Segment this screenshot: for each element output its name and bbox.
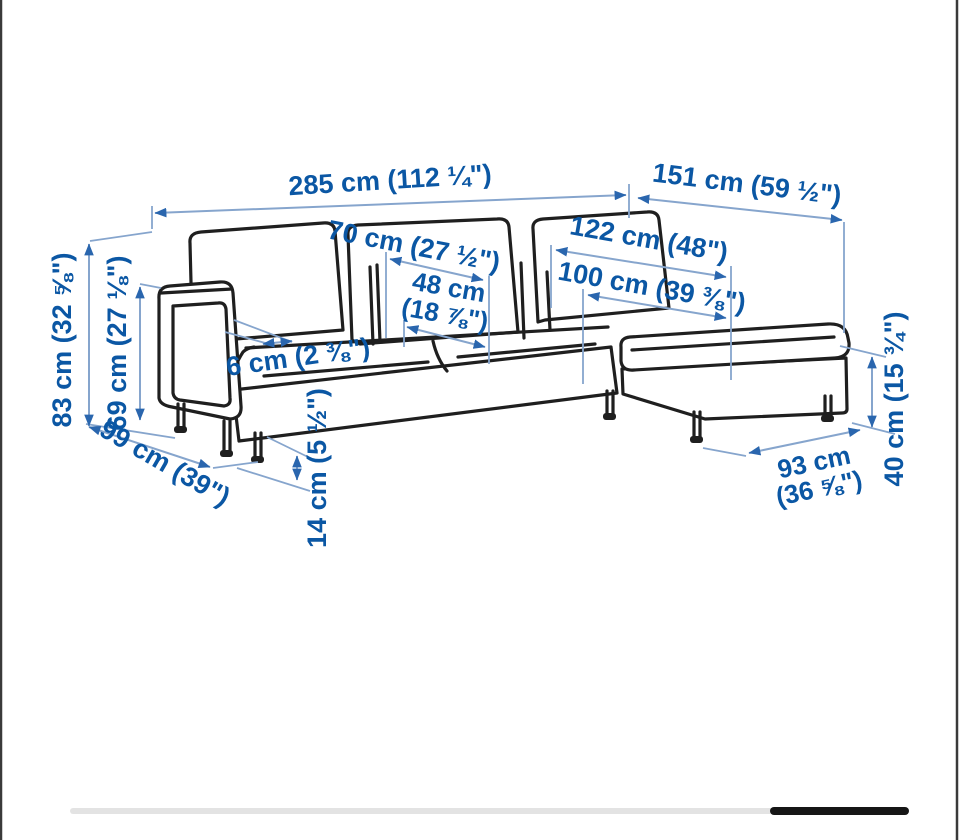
screenshot-canvas: 285 cm (112 ¼") 151 cm (59 ½") 70 cm (27…: [0, 0, 960, 840]
scrollbar-thumb[interactable]: [770, 807, 909, 815]
dim-label-width-overall: 285 cm (112 ¼"): [288, 159, 493, 201]
dim-label-seat-height: 40 cm (15 ¾"): [879, 312, 909, 487]
dim-label-height-total: 83 cm (32 ⅝"): [47, 253, 77, 428]
dim-label-depth-sofa: 99 cm (39"): [95, 414, 235, 512]
dim-label-height-armrest: 69 cm (27 ⅛"): [102, 256, 132, 431]
horizontal-scrollbar[interactable]: [70, 807, 909, 815]
sofa-line-drawing: [159, 212, 849, 463]
screen-edges: [1, 0, 957, 840]
dim-label-leg-height: 14 cm (5 ½"): [302, 388, 332, 548]
dim-line-width-overall: [155, 195, 626, 213]
